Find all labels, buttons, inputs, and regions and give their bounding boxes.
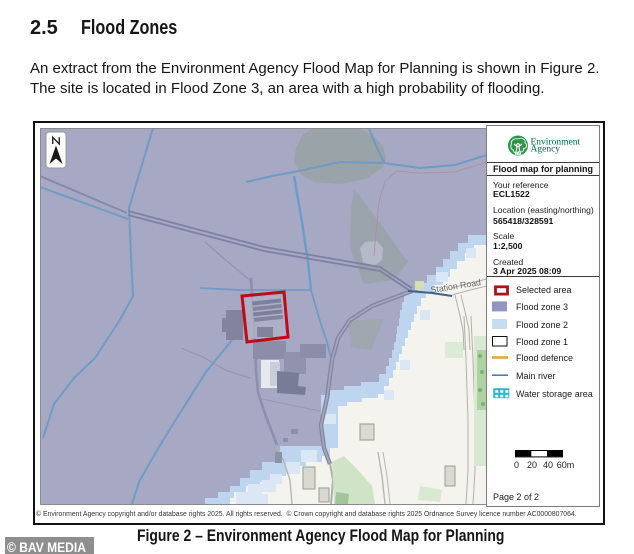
svg-text:Agency: Agency [531, 145, 561, 155]
